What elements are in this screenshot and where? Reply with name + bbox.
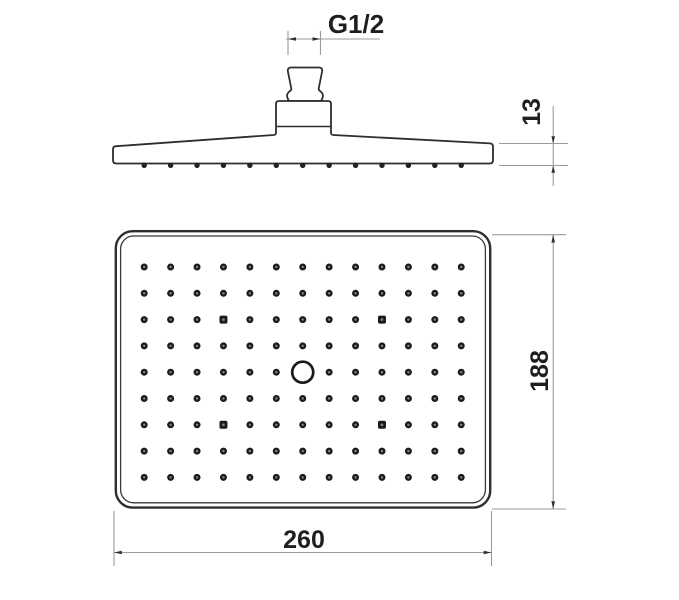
thickness-arrow-bottom — [551, 166, 555, 173]
nozzle-dot-highlight — [196, 397, 198, 399]
nozzle-dot-highlight — [407, 424, 409, 426]
nozzle-dot-highlight — [143, 371, 145, 373]
nozzle-dot-highlight — [275, 397, 277, 399]
nozzle-dot-highlight — [275, 371, 277, 373]
nozzle-dot-highlight — [249, 397, 251, 399]
thread-arrow-right — [313, 37, 321, 41]
nozzle-dot-highlight — [434, 292, 436, 294]
width-arrow-right — [484, 551, 492, 555]
nozzle-dot-highlight — [249, 371, 251, 373]
nozzle-dot-highlight — [196, 318, 198, 320]
screw-marker-center — [381, 424, 384, 427]
height-arrow-bottom — [551, 501, 555, 509]
nozzle-dot-highlight — [460, 266, 462, 268]
nozzle-dot-highlight — [143, 397, 145, 399]
nozzle-dot-highlight — [196, 345, 198, 347]
nozzle-dot-highlight — [196, 292, 198, 294]
nozzle-bump — [432, 163, 437, 168]
nozzle-dot-highlight — [143, 476, 145, 478]
nozzle-bump — [221, 163, 226, 168]
height-dimension-label: 188 — [526, 350, 554, 392]
nozzle-dot-highlight — [434, 345, 436, 347]
nozzle-dot-highlight — [328, 292, 330, 294]
nozzle-dot-highlight — [196, 450, 198, 452]
height-arrow-top — [551, 235, 555, 243]
nozzle-dot-highlight — [354, 266, 356, 268]
dimension-height: 188 — [492, 235, 566, 509]
nozzle-dot-highlight — [407, 292, 409, 294]
nozzle-dot-highlight — [249, 345, 251, 347]
nozzle-dot-highlight — [249, 476, 251, 478]
nozzle-dot-highlight — [143, 450, 145, 452]
nozzle-dot-highlight — [328, 266, 330, 268]
nozzle-dot-highlight — [143, 266, 145, 268]
nozzle-bump — [326, 163, 331, 168]
nozzle-dot-highlight — [302, 266, 304, 268]
nozzle-dot-highlight — [328, 318, 330, 320]
thickness-arrow-top — [551, 136, 555, 143]
nozzle-dot-highlight — [143, 318, 145, 320]
nozzle-dot-highlight — [169, 266, 171, 268]
nozzle-dot-highlight — [407, 318, 409, 320]
nozzle-dot-highlight — [143, 424, 145, 426]
center-opening — [292, 362, 313, 383]
thread-dimension-label: G1/2 — [328, 9, 384, 39]
screw-marker-center — [222, 424, 225, 427]
nozzle-dot-highlight — [222, 371, 224, 373]
nozzle-bump — [168, 163, 173, 168]
nozzle-dot-highlight — [354, 424, 356, 426]
nozzle-dot-highlight — [328, 397, 330, 399]
nozzle-dot-highlight — [249, 266, 251, 268]
nozzle-dot-highlight — [169, 345, 171, 347]
nozzle-dot-highlight — [328, 476, 330, 478]
nozzle-dot-highlight — [407, 397, 409, 399]
dimension-width: 260 — [114, 511, 492, 566]
nozzle-dot-highlight — [354, 371, 356, 373]
nozzle-dot-highlight — [275, 318, 277, 320]
nozzle-dot-highlight — [381, 292, 383, 294]
nozzle-dot-highlight — [354, 345, 356, 347]
nozzle-dot-highlight — [222, 397, 224, 399]
nozzle-dot-highlight — [302, 424, 304, 426]
thickness-dimension-label: 13 — [518, 98, 546, 126]
nozzle-dot-highlight — [169, 371, 171, 373]
nozzle-dot-highlight — [460, 345, 462, 347]
side-view-thread-fitting — [287, 68, 323, 102]
thread-arrow-left — [288, 37, 296, 41]
nozzle-bump — [300, 163, 305, 168]
nozzle-dot-highlight — [222, 345, 224, 347]
nozzle-bump — [247, 163, 252, 168]
nozzle-dot-highlight — [249, 318, 251, 320]
nozzle-dot-highlight — [434, 371, 436, 373]
nozzle-dot-highlight — [328, 424, 330, 426]
nozzle-dot-highlight — [460, 424, 462, 426]
width-dimension-label: 260 — [283, 526, 325, 554]
nozzle-dot-highlight — [249, 450, 251, 452]
side-view-head-outline — [113, 101, 493, 164]
nozzle-dot-highlight — [407, 266, 409, 268]
nozzle-bump — [379, 163, 384, 168]
nozzle-dot-highlight — [196, 371, 198, 373]
nozzle-dot-highlight — [302, 450, 304, 452]
nozzle-dot-highlight — [249, 424, 251, 426]
nozzle-bump — [406, 163, 411, 168]
nozzle-bump — [142, 163, 147, 168]
nozzle-dot-highlight — [407, 450, 409, 452]
nozzle-dot-highlight — [196, 266, 198, 268]
nozzle-dot-highlight — [275, 476, 277, 478]
nozzle-dot-highlight — [143, 292, 145, 294]
nozzle-dot-highlight — [275, 345, 277, 347]
nozzle-dot-highlight — [434, 318, 436, 320]
screw-marker-center — [222, 318, 225, 321]
nozzle-dot-highlight — [169, 397, 171, 399]
nozzle-dot-highlight — [169, 476, 171, 478]
technical-drawing-canvas: G1/2 13 188 260 — [0, 0, 679, 600]
nozzle-dot-highlight — [328, 371, 330, 373]
nozzle-dot-highlight — [222, 266, 224, 268]
nozzle-dot-highlight — [434, 397, 436, 399]
nozzle-dot-highlight — [434, 266, 436, 268]
nozzle-dot-highlight — [328, 450, 330, 452]
nozzle-dot-highlight — [381, 345, 383, 347]
nozzle-dot-highlight — [460, 476, 462, 478]
nozzle-bump — [274, 163, 279, 168]
shower-head-drawing: G1/2 13 188 260 — [0, 0, 679, 600]
nozzle-dot-highlight — [222, 292, 224, 294]
nozzle-dot-highlight — [434, 424, 436, 426]
nozzle-dot-highlight — [460, 318, 462, 320]
nozzle-dot-highlight — [196, 476, 198, 478]
nozzle-dot-highlight — [434, 450, 436, 452]
nozzle-dot-highlight — [434, 476, 436, 478]
nozzle-dot-highlight — [407, 345, 409, 347]
nozzle-dot-highlight — [302, 397, 304, 399]
nozzle-dot-highlight — [196, 424, 198, 426]
nozzle-dot-highlight — [407, 476, 409, 478]
side-view — [113, 68, 493, 169]
nozzle-dot-highlight — [275, 266, 277, 268]
nozzle-dot-highlight — [407, 371, 409, 373]
nozzle-dot-highlight — [381, 397, 383, 399]
nozzle-dot-highlight — [302, 292, 304, 294]
nozzle-dot-highlight — [381, 476, 383, 478]
nozzle-bump — [459, 163, 464, 168]
nozzle-dot-highlight — [302, 476, 304, 478]
nozzle-dot-highlight — [460, 371, 462, 373]
nozzle-dot-highlight — [328, 345, 330, 347]
face-view — [116, 231, 490, 507]
nozzle-dot-highlight — [222, 476, 224, 478]
nozzle-dot-highlight — [460, 450, 462, 452]
nozzle-dot-highlight — [354, 318, 356, 320]
nozzle-dot-highlight — [381, 450, 383, 452]
nozzle-dot-highlight — [460, 292, 462, 294]
nozzle-dot-highlight — [169, 292, 171, 294]
screw-marker-center — [381, 318, 384, 321]
width-arrow-left — [114, 551, 122, 555]
dimension-thickness: 13 — [499, 98, 568, 186]
nozzle-dot-highlight — [275, 450, 277, 452]
nozzle-dot-highlight — [222, 450, 224, 452]
nozzle-bump — [194, 163, 199, 168]
nozzle-bump — [353, 163, 358, 168]
nozzle-dot-highlight — [169, 450, 171, 452]
nozzle-dot-highlight — [143, 345, 145, 347]
nozzle-dot-highlight — [354, 450, 356, 452]
nozzle-dot-highlight — [381, 371, 383, 373]
nozzle-dot-highlight — [381, 266, 383, 268]
nozzle-dot-highlight — [275, 292, 277, 294]
nozzle-dot-highlight — [302, 345, 304, 347]
nozzle-dot-highlight — [354, 292, 356, 294]
nozzle-dot-highlight — [302, 318, 304, 320]
nozzle-dot-highlight — [354, 476, 356, 478]
center-opening-group — [292, 362, 313, 383]
nozzle-dot-highlight — [275, 424, 277, 426]
nozzle-dot-highlight — [354, 397, 356, 399]
nozzle-dot-highlight — [460, 397, 462, 399]
nozzle-dot-highlight — [169, 424, 171, 426]
nozzle-dot-highlight — [169, 318, 171, 320]
nozzle-dot-highlight — [249, 292, 251, 294]
dimension-thread: G1/2 — [286, 9, 384, 55]
